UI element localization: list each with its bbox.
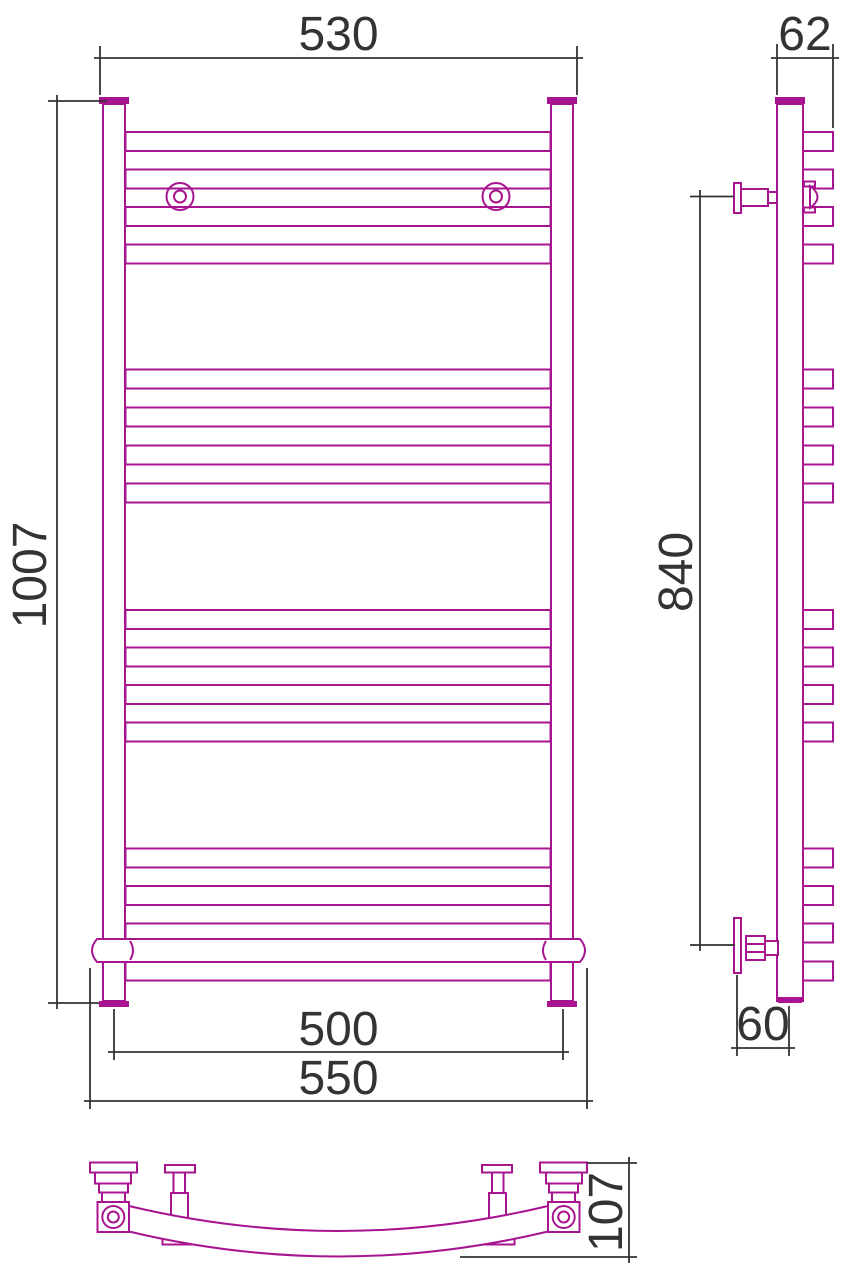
bottom-view <box>90 1163 587 1257</box>
bottom-corner-left <box>90 1163 137 1233</box>
tube-row <box>800 723 833 742</box>
tube-row <box>800 446 833 465</box>
tube-row <box>800 245 833 264</box>
side-bracket-bottom-flange <box>734 918 741 973</box>
dim-107-label: 107 <box>580 1172 633 1252</box>
side-bracket-head-base <box>803 185 810 209</box>
dim-1007-label: 1007 <box>4 522 57 629</box>
front-bracket-right-hole-icon <box>490 191 502 203</box>
front-tube-rows <box>126 132 551 981</box>
towel-rail-technical-drawing: 530 1007 500 550 6 <box>0 0 853 1280</box>
tube-row <box>126 207 551 226</box>
tube-row <box>126 723 551 742</box>
tube-row <box>800 610 833 629</box>
side-bracket-bottom-nut <box>746 936 765 960</box>
tube-row <box>126 685 551 704</box>
bottom-shelf-curve <box>129 1206 548 1257</box>
tube-row <box>800 886 833 905</box>
side-bracket-top-stem <box>741 189 768 206</box>
tube-row <box>800 484 833 503</box>
tube-row <box>800 370 833 389</box>
tube-row <box>126 886 551 905</box>
dim-530-label: 530 <box>298 8 378 61</box>
front-bracket-left-hole-icon <box>174 191 186 203</box>
tube-row <box>126 446 551 465</box>
side-bracket-top-flange <box>734 183 741 213</box>
front-shelf-rail <box>92 939 585 962</box>
side-view <box>734 97 833 1003</box>
side-post <box>777 104 803 1001</box>
tube-row <box>126 484 551 503</box>
front-cap-top-right <box>547 97 577 104</box>
dim-60-label: 60 <box>736 998 789 1051</box>
dim-500-label: 500 <box>298 1003 378 1056</box>
tube-row <box>800 962 833 981</box>
tube-row <box>126 962 551 981</box>
side-dimensions: 62 840 60 <box>650 8 839 1056</box>
side-tube-stubs <box>800 132 833 981</box>
side-bracket-bottom-stem <box>765 941 778 955</box>
tube-row <box>126 408 551 427</box>
tube-row <box>126 245 551 264</box>
tube-row <box>126 370 551 389</box>
dim-840-label: 840 <box>650 532 703 612</box>
tube-row <box>800 849 833 868</box>
dim-550-label: 550 <box>298 1052 378 1105</box>
front-cap-bottom-left <box>99 1001 129 1007</box>
tube-row <box>800 408 833 427</box>
drawing-canvas: 530 1007 500 550 6 <box>0 0 853 1280</box>
side-cap-top <box>775 97 805 104</box>
tube-row <box>126 132 551 151</box>
dim-62-label: 62 <box>778 8 831 61</box>
tube-row <box>126 849 551 868</box>
front-bracket-left-icon <box>167 183 194 210</box>
front-bracket-right-icon <box>483 183 510 210</box>
front-view <box>92 97 585 1007</box>
front-cap-bottom-right <box>547 1001 577 1007</box>
tube-row <box>800 924 833 943</box>
front-post-right <box>551 104 573 1001</box>
side-bracket-top-neck <box>768 192 777 203</box>
tube-row <box>800 648 833 667</box>
front-post-left <box>103 104 125 1001</box>
tube-row <box>800 132 833 151</box>
tube-row <box>126 648 551 667</box>
tube-row <box>126 610 551 629</box>
tube-row <box>800 685 833 704</box>
